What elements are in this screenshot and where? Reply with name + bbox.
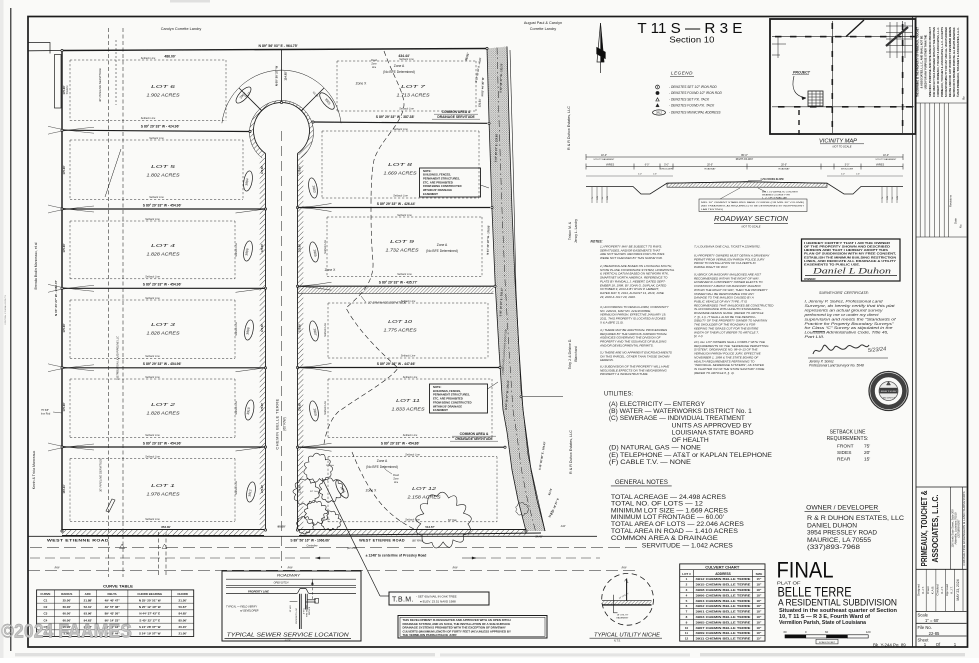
- svg-text:(MIX TREATMENT, AS REQUIRED) (: (MIX TREATMENT, AS REQUIRED) (TO BE DETE…: [701, 204, 805, 207]
- svg-text:S 89° 29′ 33″ W - 454.96': S 89° 29′ 33″ W - 454.96': [143, 441, 182, 445]
- svg-text:SHOWN FOR ITS INTENDED PURPOSE: SHOWN FOR ITS INTENDED PURPOSE. ALL RIGH…: [953, 27, 956, 97]
- svg-text:30″ Oak: 30″ Oak: [310, 491, 319, 493]
- svg-text:60.00': 60.00': [63, 605, 72, 609]
- svg-text:Centerline: Centerline: [307, 544, 319, 547]
- svg-text:CURVE: CURVE: [40, 592, 50, 596]
- svg-text:SPECIFIC PURPOSE AND SITE-SPEC: SPECIFIC PURPOSE AND SITE-SPECIFIC PROJE…: [929, 26, 932, 97]
- svg-text:PRIMEAUX, TOUCHET &: PRIMEAUX, TOUCHET &: [920, 490, 929, 566]
- svg-text:1.775 ACRES: 1.775 ACRES: [384, 328, 418, 334]
- svg-text:120: 120: [866, 630, 871, 634]
- svg-text:49° 57′ 08″: 49° 57′ 08″: [105, 605, 121, 609]
- svg-text:PLAN OF SUBDIVISION WITH MY FR: PLAN OF SUBDIVISION WITH MY FREE CONSENT…: [804, 252, 896, 256]
- svg-text:Practice for Property Boundary: Practice for Property Boundary Surveys”: [805, 322, 895, 326]
- svg-text:JEREMY P. SOLREZ: JEREMY P. SOLREZ: [881, 391, 897, 393]
- svg-text:VARIES: VARIES: [606, 163, 615, 166]
- svg-text:60.00': 60.00': [63, 612, 72, 616]
- svg-text:CULVERT CHART: CULVERT CHART: [705, 565, 740, 569]
- svg-text:for Class “C” Survey as stipul: for Class “C” Survey as stipulated in th…: [805, 326, 893, 330]
- svg-text:§I, 1.I).: §I, 1.I).: [693, 334, 704, 338]
- svg-text:Zone: Zone: [393, 479, 399, 481]
- svg-text:K.J.T.: K.J.T.: [949, 586, 953, 594]
- svg-text:LAB TESTING): LAB TESTING): [701, 208, 723, 211]
- svg-text:10′-0″: 10′-0″: [601, 154, 607, 157]
- svg-text:Blanchard: Blanchard: [574, 346, 578, 361]
- svg-text:Setback Line: Setback Line: [145, 455, 160, 458]
- svg-text:UTILITY EASEMENT: UTILITY EASEMENT: [594, 158, 615, 161]
- svg-text:LOT 2: LOT 2: [151, 402, 176, 408]
- svg-text:WITHIN 20′ DRAINAGE: WITHIN 20′ DRAINAGE: [433, 404, 462, 408]
- svg-text:3907 CHEMIN BELLE TERRE: 3907 CHEMIN BELLE TERRE: [696, 626, 751, 630]
- svg-text:(F) CABLE T.V. — NONE: (F) CABLE T.V. — NONE: [609, 460, 691, 466]
- svg-text:5′-0″: 5′-0″: [845, 164, 850, 166]
- svg-text:TOTAL AREA IN ROAD — 1.410 ACR: TOTAL AREA IN ROAD — 1.410 ACRES: [611, 529, 738, 535]
- svg-text:6′-0″: 6′-0″: [645, 164, 650, 166]
- svg-text:PIPE SEWER: PIPE SEWER: [306, 604, 308, 616]
- svg-text:WERE NOT CHECKED BY THIS SURVE: WERE NOT CHECKED BY THIS SURVEYOR.: [600, 256, 663, 260]
- svg-text:93.96': 93.96': [84, 612, 93, 616]
- svg-text:S 89° 29′ 33″ W - 424.96': S 89° 29′ 33″ W - 424.96': [141, 125, 180, 129]
- svg-text:1.828 ACRES: 1.828 ACRES: [147, 331, 181, 337]
- svg-text:N 00° 30′ 27″ W: N 00° 30′ 27″ W: [275, 66, 279, 87]
- svg-text:486.00': 486.00': [164, 55, 175, 59]
- svg-text:LOT 7: LOT 7: [401, 84, 426, 90]
- svg-text:18″: 18″: [757, 610, 762, 614]
- svg-text:1.669 ACRES: 1.669 ACRES: [384, 171, 418, 177]
- svg-text:21.00': 21.00': [179, 632, 188, 636]
- svg-text:represents an actual ground su: represents an actual ground survey: [805, 308, 883, 312]
- svg-text:SHOULDER: SHOULDER: [660, 168, 673, 170]
- svg-text:LOT 1: LOT 1: [151, 483, 176, 489]
- svg-text:513.57': 513.57': [425, 525, 435, 529]
- svg-text:- DENOTES SET P.K. TACK: - DENOTES SET P.K. TACK: [669, 98, 710, 102]
- svg-text:EASEMENT: EASEMENT: [616, 616, 629, 619]
- svg-text:DANIEL DUHON: DANIEL DUHON: [807, 523, 857, 529]
- svg-text:18″: 18″: [757, 599, 762, 603]
- svg-text:S 45° 22′ 17″ E: S 45° 22′ 17″ E: [139, 618, 160, 622]
- svg-text:DELTA: DELTA: [108, 592, 118, 596]
- svg-text:3912: 3912: [656, 111, 663, 115]
- svg-text:- DENOTES FOUND 1/2″ IRON ROD: - DENOTES FOUND 1/2″ IRON ROD: [669, 91, 723, 95]
- svg-text:LOT #: LOT #: [682, 572, 691, 576]
- svg-text:PRIMEAUX, TOUCHET & ASSOCIATES: PRIMEAUX, TOUCHET & ASSOCIATES, L.L.C. A…: [941, 27, 944, 97]
- svg-text:OWNER: OWNER: [804, 277, 816, 281]
- svg-text:Flood: Flood: [371, 60, 377, 62]
- svg-text:Drawn: Drawn: [926, 586, 930, 595]
- svg-text:S 89° 56′ 16″ W - 1066.66′: S 89° 56′ 16″ W - 1066.66′: [290, 539, 330, 543]
- svg-text:Carolyn Corrette Landry: Carolyn Corrette Landry: [161, 27, 202, 31]
- svg-text:CONSULTING ENGINEERS & LAND SU: CONSULTING ENGINEERS & LAND SURVEYORS: [963, 491, 966, 565]
- svg-text:R/W: R/W: [622, 567, 627, 570]
- svg-text:(No BFE Determined): (No BFE Determined): [366, 465, 398, 469]
- svg-text:± 1248′ to centerline of Pres: ± 1248′ to centerline of Pressley Road: [366, 554, 427, 558]
- svg-text:Setback Line: Setback Line: [397, 273, 412, 276]
- svg-text:S 24° 28′ 07″ W: S 24° 28′ 07″ W: [139, 625, 161, 629]
- svg-text:Setback Line: Setback Line: [324, 400, 327, 414]
- svg-text:Zone X: Zone X: [356, 82, 367, 86]
- svg-text:USED FOR ANY PURPOSE OTHER THA: USED FOR ANY PURPOSE OTHER THAN THE: [925, 34, 928, 89]
- svg-text:90.00': 90.00': [278, 525, 286, 529]
- svg-text:52.31': 52.31': [84, 605, 93, 609]
- svg-text:7′±: 7′±: [882, 197, 884, 199]
- svg-text:Setback Line: Setback Line: [145, 218, 160, 221]
- svg-text:CURVE TABLE: CURVE TABLE: [103, 584, 134, 588]
- svg-text:3909 CHEMIN BELLE TERRE: 3909 CHEMIN BELLE TERRE: [696, 631, 751, 635]
- svg-text:175.00': 175.00': [261, 323, 264, 332]
- svg-text:15': 15': [864, 457, 870, 463]
- svg-text:(60' R/W): (60' R/W): [283, 417, 287, 430]
- svg-text:S 89° 29′ 33″ W - 387.38': S 89° 29′ 33″ W - 387.38': [376, 115, 415, 119]
- svg-text:Setback Line: Setback Line: [141, 117, 156, 120]
- svg-text:Setback Line: Setback Line: [397, 214, 412, 217]
- svg-text:EASEMENT: EASEMENT: [423, 192, 438, 196]
- svg-text:ADDRESS: ADDRESS: [715, 572, 731, 576]
- svg-text:MINIMUM LOT SIZE — 1.669 ACRE: MINIMUM LOT SIZE — 1.669 ACRES: [611, 508, 728, 514]
- svg-text:SCALE IN FEET: SCALE IN FEET: [819, 641, 836, 644]
- svg-text:3903 CHEMIN BELLE TERRE: 3903 CHEMIN BELLE TERRE: [696, 615, 751, 619]
- svg-text:TOTAL ACREAGE — 24.498 ACRES: TOTAL ACREAGE — 24.498 ACRES: [611, 495, 726, 501]
- svg-text:Setback Line: Setback Line: [149, 196, 164, 199]
- svg-text:NO RESPONSIBILITY FOR ANY AND: NO RESPONSIBILITY FOR ANY AND ALL UNAUTH…: [945, 27, 948, 97]
- svg-text:NOT TO SCALE: NOT TO SCALE: [833, 145, 852, 149]
- svg-text:©2024 FAAMES: ©2024 FAAMES: [1, 621, 132, 643]
- svg-text:Surveyor, do hereby certify th: Surveyor, do hereby certify that this pl…: [805, 304, 896, 308]
- svg-text:PARISH RIGHT OF WAY.: PARISH RIGHT OF WAY.: [694, 265, 728, 269]
- svg-text:Date: Date: [954, 218, 958, 224]
- svg-text:LOT 10: LOT 10: [388, 319, 412, 325]
- svg-text:(337)898-8397: (337)898-8397: [958, 519, 961, 538]
- svg-text:GENERAL NOTES: GENERAL NOTES: [615, 480, 668, 486]
- svg-text:FROM BEING CONSTRUCTED: FROM BEING CONSTRUCTED: [433, 400, 472, 404]
- svg-text:VARIES: VARIES: [876, 163, 885, 166]
- svg-text:ROADWAY: ROADWAY: [778, 167, 790, 170]
- svg-text:Zone A: Zone A: [394, 64, 405, 68]
- svg-text:NOTE:: NOTE:: [433, 385, 441, 389]
- svg-text:Setback Line: Setback Line: [145, 297, 160, 300]
- svg-text:1.902 ACRES: 1.902 ACRES: [147, 93, 181, 99]
- svg-text:R/W: R/W: [288, 567, 293, 570]
- svg-text:CHORD: CHORD: [177, 592, 188, 596]
- svg-text:Zone A: Zone A: [437, 243, 448, 247]
- svg-text:(A) ELECTRICITY — ENTERGY: (A) ELECTRICITY — ENTERGY: [609, 402, 705, 408]
- svg-text:A RESIDENTIAL SUBDIVISION: A RESIDENTIAL SUBDIVISION: [778, 598, 897, 609]
- svg-text:80′-0″: 80′-0″: [741, 153, 748, 157]
- svg-text:TYPICAL UTILITY NICHE: TYPICAL UTILITY NICHE: [594, 632, 660, 638]
- svg-text:performed by me or under my di: performed by me or under my direct: [803, 313, 880, 317]
- svg-text:18″: 18″: [757, 593, 762, 597]
- svg-text:C2: C2: [44, 605, 48, 609]
- svg-text:12: 12: [685, 637, 689, 641]
- svg-text:N.T.S.: N.T.S.: [285, 640, 292, 643]
- svg-text:49° 40′ 47″: 49° 40′ 47″: [105, 598, 121, 602]
- svg-text:FOR WHICH IT WAS PREPARED WITH: FOR WHICH IT WAS PREPARED WITHOUT THE WR…: [933, 27, 936, 97]
- svg-text:60″ Oak: 60″ Oak: [448, 519, 457, 522]
- svg-text:DRAINAGE SERVITUDE: DRAINAGE SERVITUDE: [437, 115, 475, 119]
- svg-text:1.828 ACRES: 1.828 ACRES: [147, 252, 181, 258]
- svg-text:Part LIII.: Part LIII.: [805, 335, 825, 339]
- svg-text:21.50': 21.50': [179, 598, 188, 602]
- svg-text:Setback Line: Setback Line: [393, 195, 408, 198]
- svg-text:Approved: Approved: [945, 584, 949, 596]
- svg-text:18' UTILITY: 18' UTILITY: [617, 615, 629, 617]
- svg-text:131.51': 131.51': [477, 98, 481, 107]
- svg-text:S 89° 29′ 33″ W - 447.66': S 89° 29′ 33″ W - 447.66': [377, 362, 416, 366]
- svg-text:3904 CHEMIN BELLE TERRE: 3904 CHEMIN BELLE TERRE: [696, 599, 751, 603]
- svg-text:Iron Rod: Iron Rod: [41, 413, 51, 416]
- svg-text:Line: Line: [394, 482, 399, 484]
- svg-text:ASSOCIATES, L.L.C.: ASSOCIATES, L.L.C.: [931, 495, 940, 563]
- svg-text:5′-0″: 5′-0″: [664, 164, 669, 166]
- svg-text:175.00': 175.00': [299, 484, 302, 493]
- svg-text:(No BFE Determined): (No BFE Determined): [383, 70, 415, 74]
- svg-text:PROPERTY LINE: PROPERTY LINE: [296, 607, 298, 624]
- svg-text:N 25° 12′ 40″ W: N 25° 12′ 40″ W: [139, 605, 161, 609]
- svg-text:Setback Line: Setback Line: [235, 480, 238, 494]
- svg-text:Setback Line: Setback Line: [235, 321, 238, 335]
- svg-text:S 89° 29′ 33″ W - 426.44': S 89° 29′ 33″ W - 426.44': [377, 202, 416, 206]
- svg-text:84.65': 84.65': [179, 612, 188, 616]
- svg-text:20′-0″: 20′-0″: [781, 164, 787, 166]
- svg-text:LOT 11: LOT 11: [396, 398, 420, 404]
- svg-text:L: L: [627, 580, 629, 584]
- svg-text:1.713 ACRES: 1.713 ACRES: [397, 93, 431, 99]
- svg-text:25.00': 25.00': [63, 598, 72, 602]
- svg-text:Setback Line: Setback Line: [235, 242, 238, 256]
- svg-text:SERVITUDE — 1.042 ACRES: SERVITUDE — 1.042 ACRES: [642, 543, 733, 549]
- svg-text:Setback Line: Setback Line: [403, 434, 418, 437]
- svg-text:Setback Line: Setback Line: [399, 108, 414, 111]
- svg-text:175.00': 175.00': [299, 402, 302, 411]
- svg-text:THE DRAWING IS THE PROPERTY OF: THE DRAWING IS THE PROPERTY OF PRIMEAUX,…: [917, 27, 920, 97]
- svg-text:± 2% CROSS SLOPE: ± 2% CROSS SLOPE: [760, 178, 784, 181]
- svg-text:175.00': 175.00': [62, 165, 66, 174]
- svg-text:RADIUS: RADIUS: [61, 592, 72, 596]
- svg-text:R/W: R/W: [453, 567, 458, 570]
- svg-text:File No.: File No.: [918, 625, 932, 630]
- svg-text:Setback Line: Setback Line: [399, 58, 414, 61]
- svg-text:89° 43′ 26″: 89° 43′ 26″: [105, 612, 121, 616]
- svg-text:WEARING COURSE TYPE: WEARING COURSE TYPE: [762, 194, 791, 197]
- svg-text:S 89° 29′ 33″ W - 435.77': S 89° 29′ 33″ W - 435.77': [379, 281, 418, 285]
- svg-text:NOTE:: NOTE:: [423, 169, 431, 173]
- svg-text:3954 PRESSLEY ROAD: 3954 PRESSLEY ROAD: [807, 531, 878, 537]
- svg-text:C3: C3: [44, 612, 48, 616]
- svg-text:3912 CHEMIN BELLE TERRE: 3912 CHEMIN BELLE TERRE: [696, 577, 751, 581]
- svg-text:(D) NATURAL GAS — NONE: (D) NATURAL GAS — NONE: [609, 445, 701, 451]
- svg-text:Setback Line: Setback Line: [235, 400, 238, 414]
- svg-text:N 89° 56′ 03″ E - 964.75′: N 89° 56′ 03″ E - 964.75′: [258, 44, 297, 48]
- svg-text:TOTAL NO. OF LOTS — 12: TOTAL NO. OF LOTS — 12: [611, 502, 704, 508]
- svg-text:OF HEALTH: OF HEALTH: [672, 438, 709, 444]
- svg-text:3902 CHEMIN BELLE TERRE: 3902 CHEMIN BELLE TERRE: [696, 604, 751, 608]
- svg-text:75': 75': [864, 444, 870, 450]
- svg-text:SIDES: SIDES: [837, 450, 851, 456]
- svg-text:HEREON AND THAT I HEREBY ADOPT: HEREON AND THAT I HEREBY ADOPT THIS: [804, 248, 888, 252]
- svg-text:OWNER / DEVELOPER: OWNER / DEVELOPER: [806, 506, 879, 512]
- svg-text:18″: 18″: [757, 583, 762, 587]
- svg-text:Setback Line: Setback Line: [401, 300, 416, 303]
- svg-text:AND/OR DEVELOPMENTAL PERMITS.: AND/OR DEVELOPMENTAL PERMITS.: [599, 343, 654, 347]
- svg-text:175.00': 175.00': [62, 243, 66, 252]
- svg-text:R/W: R/W: [55, 567, 60, 570]
- svg-text:ETC. ARE PROHIBITED: ETC. ARE PROHIBITED: [423, 180, 453, 184]
- svg-text:R & R DUHON ESTATES, LLC: R & R DUHON ESTATES, LLC: [807, 516, 905, 522]
- svg-text:Setback Line: Setback Line: [141, 57, 156, 60]
- svg-text:PROJECT: PROJECT: [793, 71, 811, 75]
- svg-text:WIDTH OF THEIR LOT (REFER TO A: WIDTH OF THEIR LOT (REFER TO ARTICLE 7,: [694, 330, 759, 334]
- svg-text:175.00': 175.00': [62, 85, 66, 94]
- svg-text:K.A.B.: K.A.B.: [930, 586, 934, 595]
- svg-text:Setback Line: Setback Line: [405, 454, 420, 457]
- svg-text:Vermilion Parish, State of Lou: Vermilion Parish, State of Louisiana: [779, 620, 866, 626]
- svg-text:853.09': 853.09': [161, 525, 171, 529]
- svg-text:- SET 60d NAIL IN OAK TREE: - SET 60d NAIL IN OAK TREE: [416, 594, 457, 598]
- svg-text:R & R Duhon Estates, LLC: R & R Duhon Estates, LLC: [567, 106, 571, 150]
- svg-text:● ELEV. 23.51 NAVD 1988: ● ELEV. 23.51 NAVD 1988: [420, 599, 456, 603]
- svg-text:1′-6″: 1′-6″: [856, 174, 860, 176]
- svg-text:EASEMENT: EASEMENT: [433, 408, 448, 412]
- svg-text:(C) SEWERAGE — INDIVIDUAL TRE: (C) SEWERAGE — INDIVIDUAL TREATMENT: [609, 416, 745, 422]
- svg-text:N 01° 44′ 35″ W: N 01° 44′ 35″ W: [480, 77, 485, 96]
- svg-text:20″ Oak: 20″ Oak: [322, 519, 331, 521]
- svg-text:C1: C1: [44, 598, 48, 602]
- svg-text:Jency L. Landry: Jency L. Landry: [574, 219, 578, 243]
- svg-text:N 00° 30′ 27″ W - 1066.07′: N 00° 30′ 27″ W - 1066.07′: [54, 280, 58, 316]
- svg-text:Triston M. &: Triston M. &: [568, 221, 572, 240]
- svg-text:N.T.S.: N.T.S.: [614, 640, 621, 643]
- svg-text:DRAINAGE SERVITUDE: DRAINAGE SERVITUDE: [455, 437, 493, 441]
- svg-text:60: 60: [825, 630, 829, 634]
- svg-text:21.88': 21.88': [84, 598, 93, 602]
- svg-text:18″: 18″: [757, 588, 762, 592]
- svg-text:2.158 ACRES: 2.158 ACRES: [406, 495, 441, 501]
- svg-text:MINIMUM LOT FRONTAGE — 60.00′: MINIMUM LOT FRONTAGE — 60.00′: [611, 515, 725, 521]
- svg-text:FROM BEING CONSTRUCTED: FROM BEING CONSTRUCTED: [423, 184, 462, 188]
- svg-text:OF THE PROPERTY SHOWN AND DESC: OF THE PROPERTY SHOWN AND DESCRIBED: [804, 245, 890, 249]
- svg-text:I, Jeremy P. Solrez, Professio: I, Jeremy P. Solrez, Professional Land: [805, 300, 884, 304]
- svg-text:Zone X: Zone X: [366, 489, 377, 493]
- svg-text:COMMON AREA &: COMMON AREA &: [460, 432, 489, 436]
- svg-text:UNITS AS APPROVED BY: UNITS AS APPROVED BY: [672, 423, 752, 429]
- svg-text:PROPERTY LINE: PROPERTY LINE: [248, 590, 269, 594]
- svg-text:15″: 15″: [757, 577, 762, 581]
- svg-text:Line: Line: [372, 67, 377, 69]
- svg-text:I HEREBY CERTIFY THAT I AM THE: I HEREBY CERTIFY THAT I AM THE OWNER: [804, 241, 890, 245]
- svg-text:RIGHT-OF-WAY: RIGHT-OF-WAY: [736, 158, 754, 161]
- svg-text:©2023 PRIMEAUX, TOUCHET & ASSO: ©2023 PRIMEAUX, TOUCHET & ASSOCIATES, L.…: [957, 27, 960, 97]
- svg-text:4″ PVC: 4″ PVC: [304, 607, 306, 614]
- svg-text:30' PIPELINE SERVITUDE: 30' PIPELINE SERVITUDE: [98, 68, 102, 102]
- svg-text:Setback Line: Setback Line: [393, 128, 408, 131]
- svg-text:R & R Duhon Estates, LLC: R & R Duhon Estates, LLC: [569, 430, 573, 474]
- svg-text:NOT TO SCALE: NOT TO SCALE: [742, 225, 761, 229]
- svg-text:Zone: Zone: [371, 64, 377, 66]
- svg-text:REUSE AND FOR ANY WORK NOT REV: REUSE AND FOR ANY WORK NOT REVIEWED HERE…: [949, 27, 952, 97]
- svg-text:50.67': 50.67': [179, 605, 188, 609]
- svg-text:5′±: 5′±: [892, 197, 894, 199]
- svg-text:K.J.T.: K.J.T.: [940, 586, 944, 594]
- svg-text:CHORD BEARING: CHORD BEARING: [137, 592, 162, 596]
- svg-text:3905 CHEMIN BELLE TERRE: 3905 CHEMIN BELLE TERRE: [696, 620, 751, 624]
- svg-text:N 44° 37′ 43″ E: N 44° 37′ 43″ E: [139, 612, 160, 616]
- svg-text:(B) WATER — WATERWORKS DISTRI: (B) WATER — WATERWORKS DISTRICT No. 1: [609, 409, 753, 415]
- svg-text:Setback Line: Setback Line: [145, 376, 160, 379]
- svg-text:BUILDINGS, FENCES,: BUILDINGS, FENCES,: [433, 389, 461, 393]
- svg-text:LOUISIANA STATE BOARD: LOUISIANA STATE BOARD: [672, 431, 755, 437]
- svg-text:S 89° 29′ 33″ W - 454.96': S 89° 29′ 33″ W - 454.96': [143, 362, 182, 366]
- svg-text:S 89° 29′ 33″ W - 454.96': S 89° 29′ 33″ W - 454.96': [143, 203, 182, 207]
- svg-text:20': 20': [864, 450, 870, 456]
- svg-text:Scale: Scale: [918, 613, 929, 618]
- svg-text:BUILDINGS, FENCES,: BUILDINGS, FENCES,: [423, 173, 451, 177]
- svg-text:OPEN DITCH: OPEN DITCH: [274, 581, 289, 584]
- svg-text:11: 11: [685, 631, 689, 635]
- svg-text:1′-6″: 1′-6″: [653, 174, 657, 176]
- svg-text:SURVEYORS' CERTIFICATE:: SURVEYORS' CERTIFICATE:: [819, 291, 869, 295]
- svg-text:WITHIN 20′ DRAINAGE: WITHIN 20′ DRAINAGE: [423, 188, 452, 192]
- svg-text:175.00': 175.00': [261, 165, 264, 174]
- svg-text:3906 CHEMIN BELLE TERRE: 3906 CHEMIN BELLE TERRE: [696, 593, 751, 597]
- svg-text:85.06': 85.06': [179, 618, 188, 622]
- svg-text:(REFER TO ARTICLE 8, §. 4).: (REFER TO ARTICLE 8, §. 4).: [694, 371, 735, 375]
- svg-text:Setback Line: Setback Line: [145, 355, 160, 358]
- svg-text:1″ = 60′: 1″ = 60′: [925, 618, 939, 623]
- svg-text:LOT 3: LOT 3: [151, 322, 176, 328]
- svg-text:Daniel L Duhon: Daniel L Duhon: [811, 267, 891, 276]
- svg-text:- DENOTES FOUND P.K. TACK: - DENOTES FOUND P.K. TACK: [669, 104, 715, 108]
- svg-text:(337)893-7968: (337)893-7968: [807, 545, 861, 551]
- svg-text:supervision and meets the “Sta: supervision and meets the “Standards of: [805, 317, 897, 321]
- svg-text:175.00': 175.00': [261, 402, 264, 411]
- svg-text:FINAL: FINAL: [777, 558, 834, 583]
- svg-text:PERMANENT STRUCTURES,: PERMANENT STRUCTURES,: [423, 177, 460, 181]
- svg-text:N 25° 20′ 51″ W: N 25° 20′ 51″ W: [139, 598, 161, 602]
- svg-text:FRONT: FRONT: [837, 444, 854, 450]
- svg-text:LOT 12: LOT 12: [412, 486, 436, 492]
- svg-text:175.00': 175.00': [261, 243, 264, 252]
- svg-text:7.) LOUISIANA ONE CALL TICKET: 7.) LOUISIANA ONE CALL TICKET # 22045676…: [694, 245, 761, 249]
- svg-text:175.00': 175.00': [62, 402, 66, 411]
- svg-text:DISTRIBUTION LIQUID PIPELINE L: DISTRIBUTION LIQUID PIPELINE LLC: [117, 336, 120, 380]
- svg-text:Setback Line: Setback Line: [405, 518, 420, 521]
- svg-text:(60' R/W): (60' R/W): [412, 538, 423, 542]
- svg-text:(E) TELEPHONE — AT&T or KAPLA: (E) TELEPHONE — AT&T or KAPLAN TELEPHONE: [609, 453, 772, 459]
- svg-text:- DENOTES SET 1/2″ IRON ROD: - DENOTES SET 1/2″ IRON ROD: [669, 85, 717, 89]
- svg-text:114.92': 114.92': [284, 71, 288, 80]
- svg-text:THE VERMILION PARISH POLICE JU: THE VERMILION PARISH POLICE JURY.: [403, 633, 458, 637]
- svg-text:Designed: Designed: [916, 584, 920, 596]
- svg-text:Setback Line: Setback Line: [403, 376, 418, 379]
- svg-text:Professional Land Surveyor No.: Professional Land Surveyor No. 5048: [809, 364, 864, 368]
- svg-text:24″ Oak: 24″ Oak: [326, 465, 335, 467]
- svg-text:20′-0″: 20′-0″: [707, 164, 713, 166]
- svg-text:18″: 18″: [757, 626, 762, 630]
- svg-text:UTILITY EASEMENT: UTILITY EASEMENT: [876, 158, 897, 161]
- svg-text:ETC. ARE PROHIBITED: ETC. ARE PROHIBITED: [433, 397, 463, 401]
- svg-text:3901 CHEMIN BELLE TERRE: 3901 CHEMIN BELLE TERRE: [696, 610, 751, 614]
- svg-text:PROPERTY & INFRASTRUCTURE.: PROPERTY & INFRASTRUCTURE.: [600, 372, 649, 376]
- svg-text:NOTES:: NOTES:: [591, 240, 603, 244]
- svg-text:(No BFE Determined): (No BFE Determined): [426, 249, 458, 253]
- svg-text:X & A (BFE 21.0).: X & A (BFE 21.0).: [599, 320, 624, 324]
- svg-text:COMMON AREA &: COMMON AREA &: [442, 110, 471, 114]
- svg-text:2′-0″: 2′-0″: [841, 174, 845, 176]
- svg-text:Checked: Checked: [935, 584, 939, 595]
- svg-text:S 89° 29′ 33″ W - 454.96': S 89° 29′ 33″ W - 454.96': [143, 283, 182, 287]
- svg-text:MIN. 1 1/2″ ASPHALTIC CONCRETE: MIN. 1 1/2″ ASPHALTIC CONCRETE: [762, 191, 799, 194]
- svg-text:Setback Line: Setback Line: [145, 434, 160, 437]
- svg-text:Section 10: Section 10: [669, 35, 714, 45]
- svg-text:1.732 ACRES: 1.732 ACRES: [386, 248, 420, 254]
